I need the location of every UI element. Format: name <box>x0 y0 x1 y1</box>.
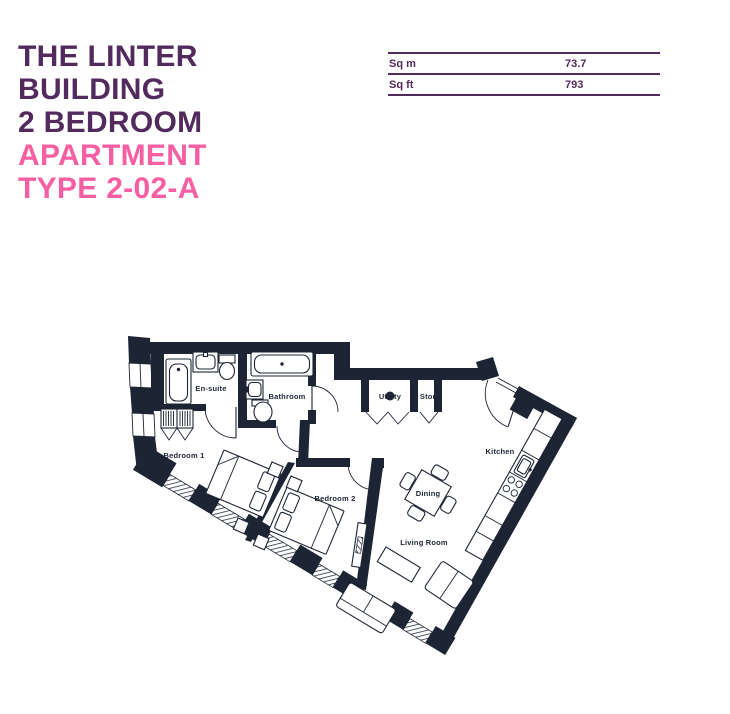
living-room-label: Living Room <box>400 538 448 547</box>
kitchen-counter <box>465 409 562 560</box>
coffee-table <box>377 547 420 582</box>
kitchen-label: Kitchen <box>486 447 515 456</box>
ensuite-door <box>205 407 236 438</box>
window <box>163 474 195 501</box>
bedroom2-label: Bedroom 2 <box>315 494 356 503</box>
boiler-symbol <box>386 392 395 401</box>
dining-label: Dining <box>416 489 441 498</box>
floorplan-page: THE LINTER BUILDING 2 BEDROOM APARTMENT … <box>0 0 730 714</box>
bedroom1-label: Bedroom 1 <box>164 451 205 460</box>
ensuite-label: En-suite <box>195 384 226 393</box>
floorplan-drawing: En-suite Bathroom Bedroom 1 Bedroom 2 Ut… <box>0 0 730 714</box>
store-label: Store <box>420 392 440 401</box>
bathroom-label: Bathroom <box>268 392 305 401</box>
utility-bifold-door <box>366 412 409 424</box>
store-bifold-door <box>420 412 438 423</box>
wardrobe-bifold-door <box>161 428 193 440</box>
bathroom-fixtures <box>245 352 313 422</box>
window <box>403 619 432 644</box>
bathroom-door <box>312 386 338 412</box>
ensuite-fixtures <box>166 352 235 404</box>
wardrobe <box>161 409 193 428</box>
